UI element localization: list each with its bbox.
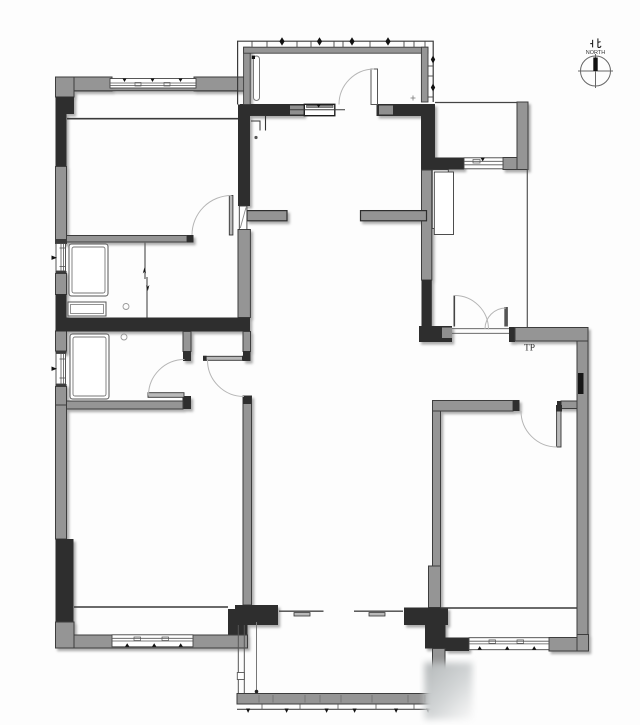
svg-text:NORTH: NORTH xyxy=(586,50,605,56)
svg-text:TP: TP xyxy=(524,344,535,354)
